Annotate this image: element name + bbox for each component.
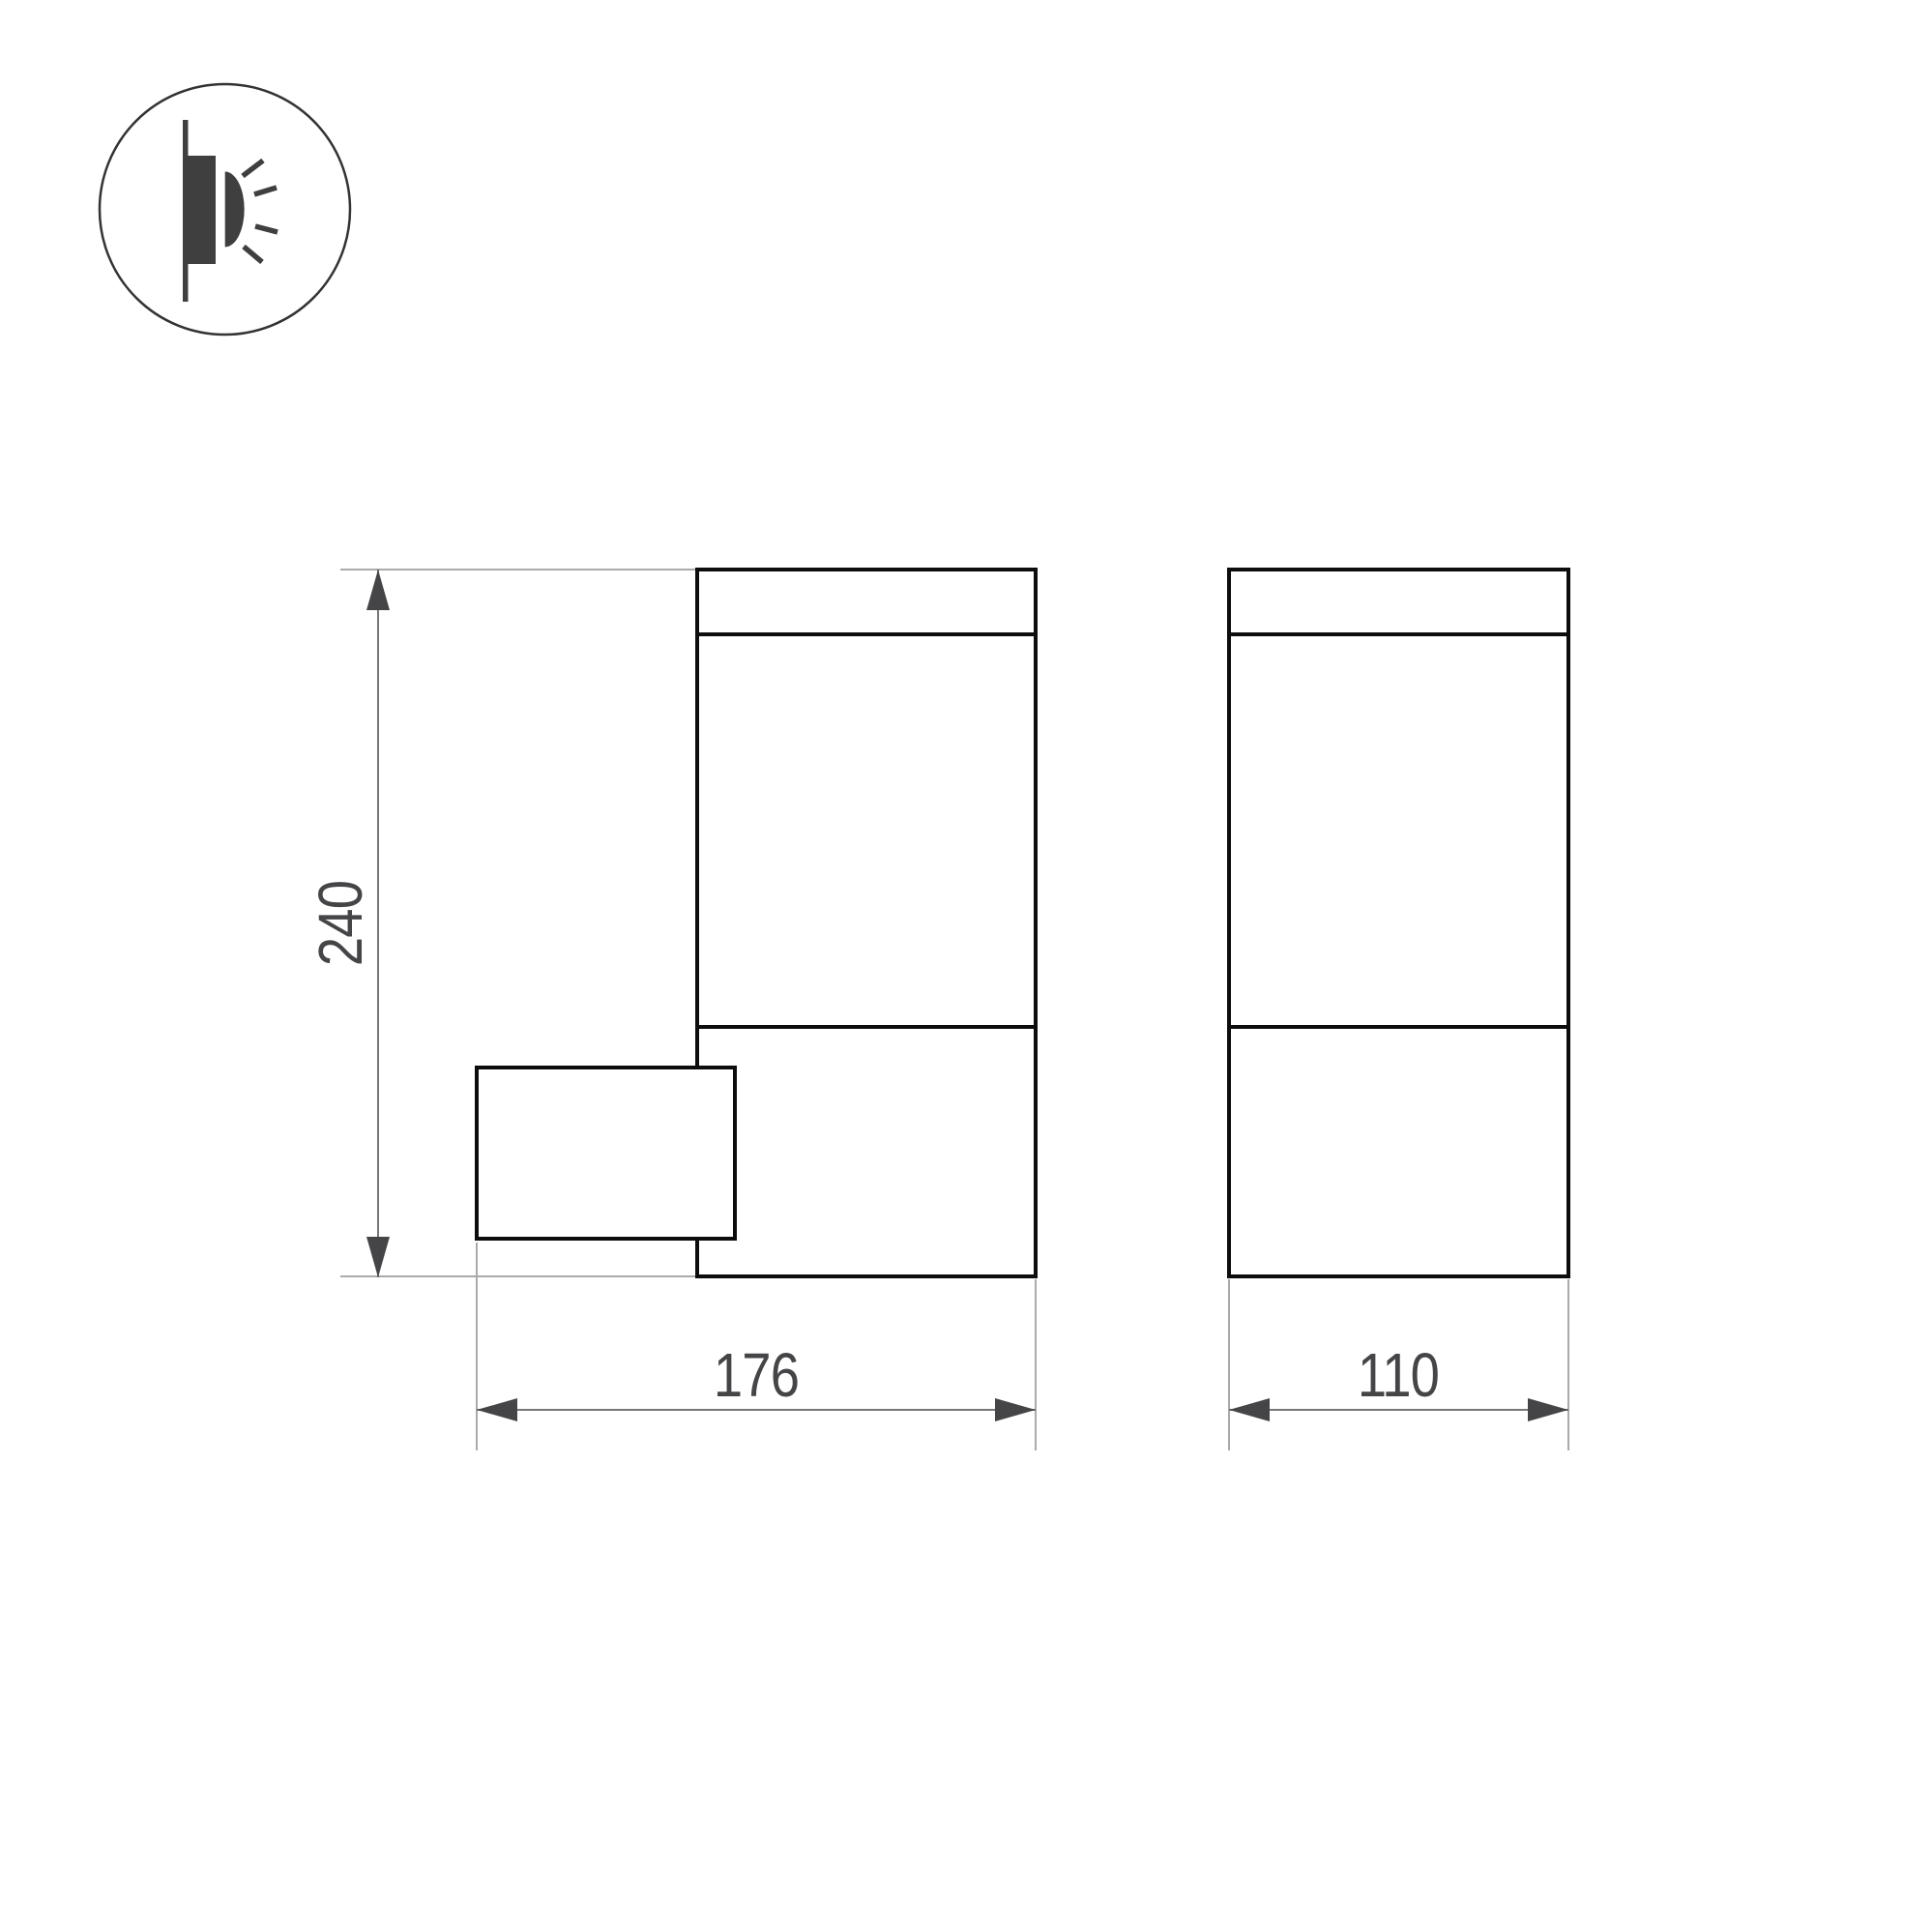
dim-width-extension-right [1567,1279,1569,1450]
dim-height-arrow-up [366,570,390,610]
icon-fixture-body [188,156,216,264]
icon-light-ray [255,226,278,232]
side-view-division-line [697,1025,1034,1029]
dim-width-extension-left [1228,1279,1230,1450]
wall-bracket [475,1066,737,1241]
dim-height-extension-top [340,569,695,571]
icon-wall-line [183,120,189,302]
dim-depth-extension-right [1035,1279,1037,1450]
side-view-outline [695,568,1038,1278]
icon-light-ray [243,161,263,176]
dim-height-line [377,570,379,1277]
dim-depth-label: 176 [674,1346,838,1404]
icon-circle-border [100,84,350,335]
icon-lamp-lens [225,172,245,248]
wall-lamp-icon [97,81,353,337]
technical-drawing-canvas: 240 176 110 [0,0,1932,1932]
dim-depth-arrow-left [477,1398,517,1421]
icon-light-ray [244,247,262,262]
front-view-outline [1227,568,1570,1278]
dim-height-extension-bottom [340,1275,695,1277]
side-view-cap-line [697,632,1034,636]
dim-height-arrow-down [366,1237,390,1277]
icon-light-ray [254,188,277,194]
dim-width-label: 110 [1316,1346,1480,1404]
dim-width-arrow-left [1229,1398,1270,1421]
front-view-division-line [1229,1025,1568,1029]
icon-light-rays [243,161,278,262]
dim-depth-arrow-right [995,1398,1036,1421]
dim-width-arrow-right [1528,1398,1568,1421]
front-view-cap-line [1229,632,1568,636]
dim-height-label: 240 [311,841,369,1006]
